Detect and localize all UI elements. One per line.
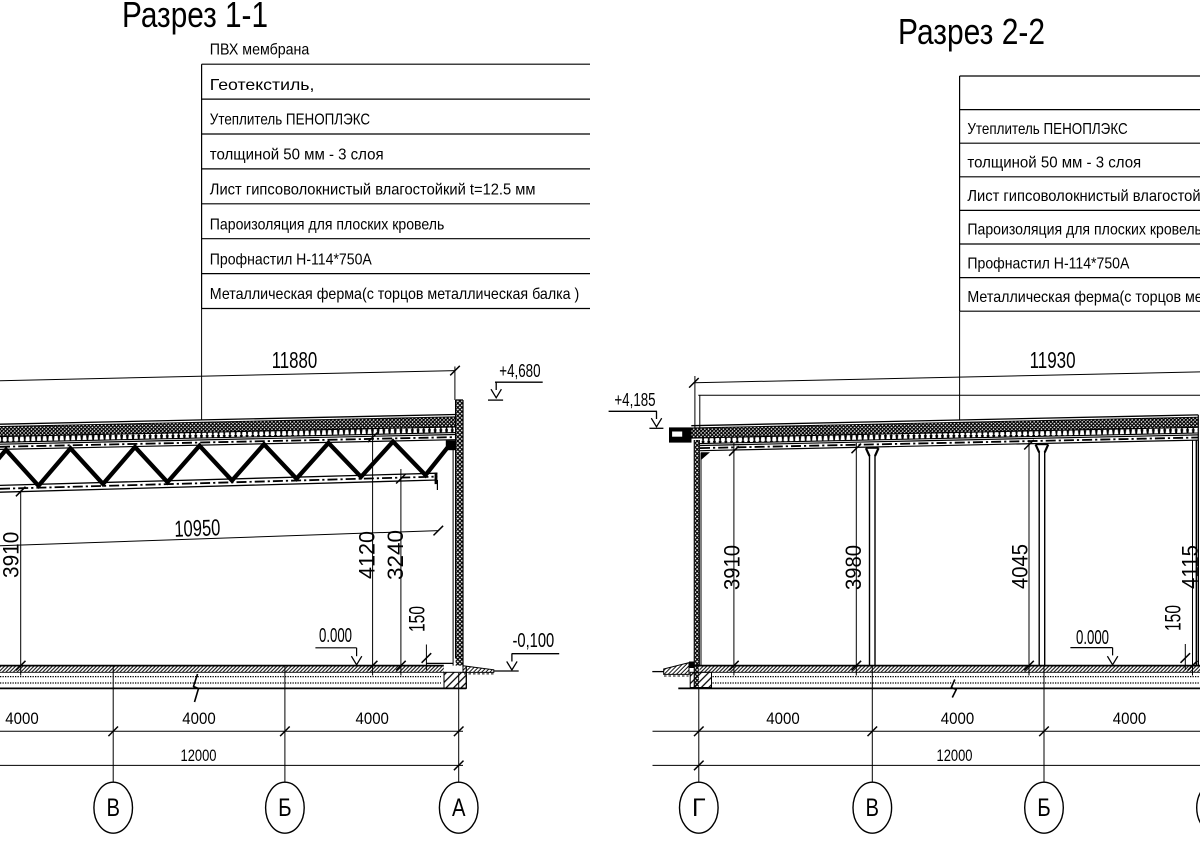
svg-text:Металлическая ферма(с торцов м: Металлическая ферма(с торцов металлическ… [967,289,1200,306]
svg-text:10950: 10950 [174,514,221,542]
svg-text:4000: 4000 [356,710,389,728]
svg-text:Разрез 2-2: Разрез 2-2 [898,11,1045,52]
svg-text:11930: 11930 [1030,347,1076,373]
svg-text:Лист гипсоволокнистый влагосто: Лист гипсоволокнистый влагостойкий t=12.… [210,182,536,199]
svg-text:Профнастил Н-114*750А: Профнастил Н-114*750А [967,255,1129,272]
svg-text:Пароизоляция для плоских крове: Пароизоляция для плоских кровель [210,216,444,233]
svg-text:0.000: 0.000 [1076,627,1109,649]
svg-text:Разрез 1-1: Разрез 1-1 [122,0,268,35]
svg-text:Металлическая ферма(с торцов м: Металлическая ферма(с торцов металлическ… [210,286,580,303]
svg-text:толщиной 50 мм - 3 слоя: толщиной 50 мм - 3 слоя [210,147,384,164]
svg-text:4000: 4000 [5,710,38,728]
svg-text:12000: 12000 [937,747,973,765]
svg-text:Утеплитель ПЕНОПЛЭКС: Утеплитель ПЕНОПЛЭКС [967,121,1127,138]
svg-text:-0,100: -0,100 [513,630,555,652]
svg-text:150: 150 [405,606,430,632]
svg-text:4045: 4045 [1008,544,1033,589]
svg-text:4000: 4000 [182,710,215,728]
svg-text:Профнастил Н-114*750А: Профнастил Н-114*750А [210,251,372,268]
svg-text:толщиной 50 мм - 3 слоя: толщиной 50 мм - 3 слоя [967,155,1141,172]
svg-text:150: 150 [1161,605,1186,631]
svg-text:Пароизоляция для плоских крове: Пароизоляция для плоских кровель [967,222,1200,239]
svg-text:А: А [452,794,466,822]
svg-text:4000: 4000 [941,710,974,728]
svg-text:+4,185: +4,185 [614,389,655,410]
svg-text:Г: Г [692,794,706,822]
svg-text:4000: 4000 [766,710,799,728]
svg-text:ПВХ мембрана: ПВХ мембрана [210,42,310,59]
svg-text:В: В [106,794,120,822]
svg-text:11880: 11880 [272,347,318,373]
svg-text:Б: Б [278,794,292,822]
svg-text:Утеплитель ПЕНОПЛЭКС: Утеплитель ПЕНОПЛЭКС [210,112,370,129]
svg-text:3910: 3910 [0,532,24,578]
svg-text:В: В [866,794,880,822]
svg-text:Б: Б [1037,794,1051,822]
svg-text:+4,680: +4,680 [499,360,540,381]
svg-text:3910: 3910 [720,545,745,590]
svg-text:3240: 3240 [383,530,408,580]
svg-text:12000: 12000 [181,747,217,765]
svg-text:4120: 4120 [355,531,380,579]
svg-text:4115: 4115 [1178,545,1200,589]
svg-text:Лист гипсоволокнистый влагосто: Лист гипсоволокнистый влагостойкий t=12.… [967,188,1200,205]
svg-text:3980: 3980 [841,545,866,590]
svg-text:0.000: 0.000 [319,625,352,647]
svg-text:Геотекстиль,: Геотекстиль, [210,77,315,94]
svg-text:4000: 4000 [1113,710,1146,728]
